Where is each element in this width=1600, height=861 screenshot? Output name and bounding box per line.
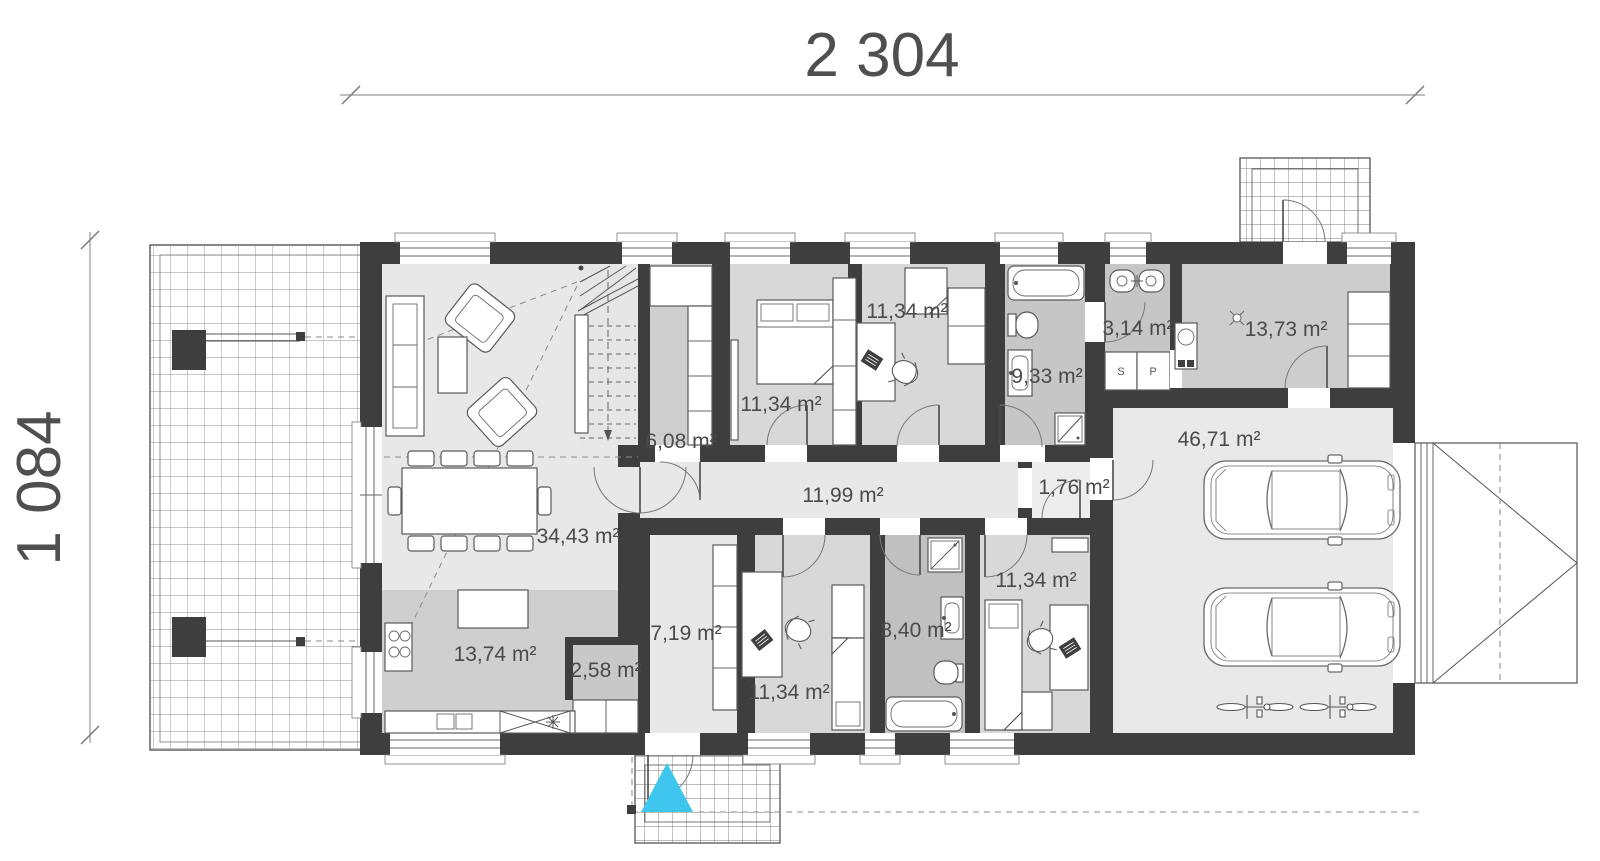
garage-door xyxy=(1415,443,1577,683)
shower xyxy=(928,538,962,572)
label-bedroom-bottom-right: 11,34 m² xyxy=(995,569,1076,592)
dining-table xyxy=(402,468,537,534)
dryer-label: P xyxy=(1149,366,1156,378)
washer-label: S xyxy=(1117,366,1124,378)
terrace-door xyxy=(352,422,382,568)
window xyxy=(1342,233,1396,264)
car xyxy=(1204,582,1400,672)
desk xyxy=(742,572,782,677)
floor-plan-canvas: 2 304 1 084 xyxy=(0,0,1600,861)
dining-chair xyxy=(441,536,467,551)
window xyxy=(860,733,900,764)
wardrobe-cabinet xyxy=(833,278,856,445)
window xyxy=(845,233,915,264)
label-living-dining: 34,43 m² xyxy=(537,525,620,548)
label-bathroom-main: 9,33 m² xyxy=(1011,365,1082,388)
mirror xyxy=(731,340,738,440)
bathtub xyxy=(1008,266,1084,300)
terrace xyxy=(150,245,372,750)
dimension-top-label: 2 304 xyxy=(804,21,959,90)
terrace-post xyxy=(172,330,206,370)
window xyxy=(395,233,495,264)
dining-chair xyxy=(474,536,500,551)
window xyxy=(995,233,1063,264)
label-bedroom-top-left: 11,34 m² xyxy=(740,393,821,416)
entrance-door-opening xyxy=(645,733,700,755)
dining-chair xyxy=(441,451,467,466)
single-bed xyxy=(985,600,1022,730)
coffee-table xyxy=(438,337,467,393)
label-pantry: 2,58 m² xyxy=(570,659,641,682)
sofa xyxy=(386,296,424,436)
dining-chair xyxy=(538,487,551,515)
dining-chair xyxy=(408,451,434,466)
cabinet xyxy=(832,585,864,638)
shower xyxy=(1055,413,1085,445)
terrace-post xyxy=(172,617,206,657)
label-bathroom-small: 8,40 m² xyxy=(880,619,951,642)
boiler xyxy=(1175,323,1197,369)
dimension-left-label: 1 084 xyxy=(5,410,74,565)
toilet xyxy=(1008,312,1038,338)
cabinet xyxy=(1022,692,1052,730)
shelf xyxy=(650,266,712,306)
label-kitchen: 13,74 m² xyxy=(454,643,537,666)
dining-chair xyxy=(474,451,500,466)
dining-chair xyxy=(388,487,401,515)
dining-chair xyxy=(507,536,533,551)
counter xyxy=(1348,292,1390,388)
label-vestibule: 1,76 m² xyxy=(1038,476,1109,499)
label-bedroom-top-middle: 11,34 m² xyxy=(866,300,947,323)
window xyxy=(945,733,1019,764)
cooker-hood-symbol xyxy=(546,715,560,729)
label-corridor: 7,19 m² xyxy=(650,622,721,645)
label-wardrobe-room: 6,08 m² xyxy=(645,430,716,453)
dining-chair xyxy=(507,451,533,466)
dining-chair xyxy=(408,536,434,551)
label-utility: 13,73 m² xyxy=(1245,318,1328,341)
car xyxy=(1204,455,1400,545)
room-garage xyxy=(1113,408,1393,733)
kitchen-island xyxy=(458,590,528,628)
window xyxy=(352,647,382,718)
double-bed xyxy=(757,300,833,384)
floor-plan-page: 2 304 1 084 xyxy=(0,0,1600,861)
cooktop-counter xyxy=(385,623,412,671)
window xyxy=(743,733,815,764)
tv-cabinet xyxy=(575,315,588,433)
window xyxy=(1105,233,1151,264)
utility-porch-door-opening xyxy=(1283,242,1327,264)
dimension-left: 1 084 xyxy=(5,231,99,744)
toilet xyxy=(934,661,963,684)
label-hallway: 11,99 m² xyxy=(802,484,883,507)
label-bedroom-bottom-left: 11,34 m² xyxy=(748,681,829,704)
window xyxy=(385,733,505,764)
shelf xyxy=(1052,538,1088,552)
stairs xyxy=(575,264,638,445)
single-bed xyxy=(832,638,864,730)
window xyxy=(725,233,795,264)
label-wc: 3,14 m² xyxy=(1102,317,1173,340)
porch-top-right xyxy=(1240,158,1370,242)
window xyxy=(617,233,677,264)
bathtub xyxy=(886,697,962,731)
label-garage: 46,71 m² xyxy=(1178,428,1261,451)
dimension-top: 2 304 xyxy=(340,21,1425,104)
